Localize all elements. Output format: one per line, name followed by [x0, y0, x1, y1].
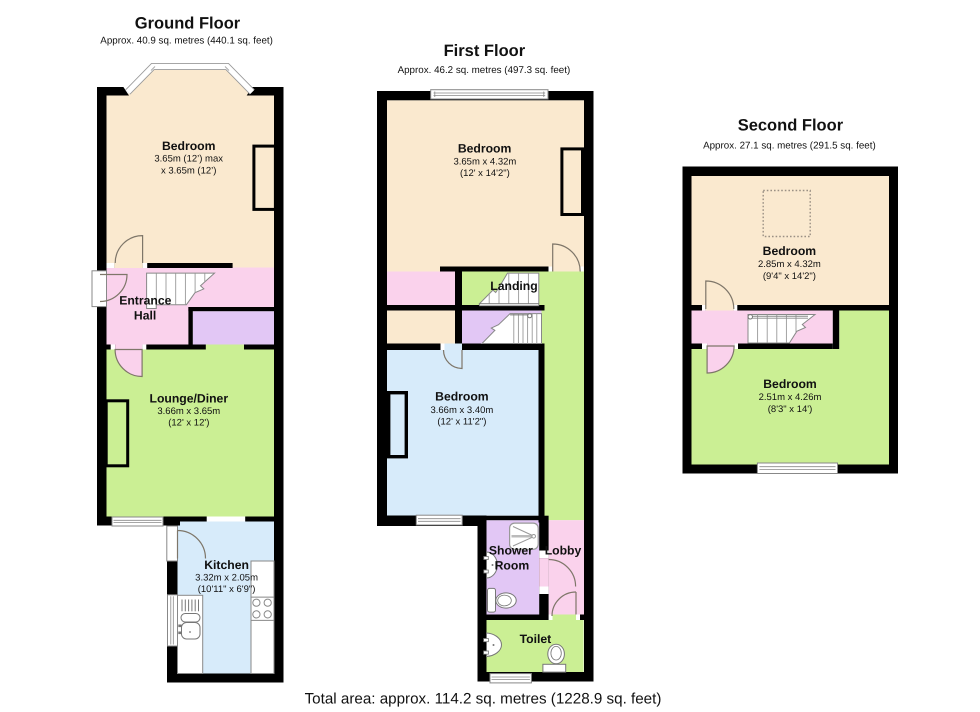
svg-text:3.66m x 3.40m: 3.66m x 3.40m — [430, 405, 493, 416]
svg-text:(9'4" x 14'2"): (9'4" x 14'2") — [763, 271, 816, 282]
svg-text:Ground Floor: Ground Floor — [135, 14, 241, 32]
svg-text:3.32m x 2.05m: 3.32m x 2.05m — [195, 573, 258, 584]
svg-text:Landing: Landing — [490, 279, 537, 293]
svg-text:2.85m x 4.32m: 2.85m x 4.32m — [758, 259, 821, 270]
svg-text:Approx. 40.9 sq. metres (440.1: Approx. 40.9 sq. metres (440.1 sq. feet) — [100, 36, 273, 47]
svg-text:Bedroom: Bedroom — [162, 139, 216, 153]
svg-text:Approx. 46.2 sq. metres (497.3: Approx. 46.2 sq. metres (497.3 sq. feet) — [398, 65, 571, 76]
svg-text:Shower: Shower — [489, 544, 533, 558]
svg-text:Lobby: Lobby — [545, 544, 582, 558]
svg-text:2.51m x 4.26m: 2.51m x 4.26m — [759, 392, 822, 403]
svg-text:Bedroom: Bedroom — [763, 244, 817, 258]
svg-text:3.65m (12’) max: 3.65m (12’) max — [154, 154, 223, 165]
svg-text:Second Floor: Second Floor — [738, 116, 844, 134]
svg-text:Bedroom: Bedroom — [458, 141, 512, 155]
svg-text:First Floor: First Floor — [444, 42, 526, 60]
svg-text:Bedroom: Bedroom — [763, 377, 817, 391]
svg-text:Kitchen: Kitchen — [204, 558, 249, 572]
svg-text:(12' x 11'2"): (12' x 11'2") — [437, 417, 486, 428]
svg-text:Total area: approx. 114.2 sq.: Total area: approx. 114.2 sq. metres (12… — [305, 691, 662, 708]
svg-text:(8'3" x 14'): (8'3" x 14') — [768, 404, 813, 415]
svg-text:(10'11" x 6'9"): (10'11" x 6'9") — [198, 584, 256, 595]
svg-text:3.65m x 4.32m: 3.65m x 4.32m — [453, 156, 516, 167]
svg-text:(12' x 12'): (12' x 12') — [168, 418, 209, 429]
svg-text:3.66m x 3.65m: 3.66m x 3.65m — [157, 406, 220, 417]
svg-text:Approx. 27.1 sq. metres (291.5: Approx. 27.1 sq. metres (291.5 sq. feet) — [703, 141, 876, 152]
svg-text:Hall: Hall — [134, 308, 156, 322]
svg-text:Entrance: Entrance — [119, 293, 171, 307]
svg-text:Room: Room — [495, 558, 530, 572]
svg-text:Toilet: Toilet — [520, 632, 552, 646]
svg-text:(12' x 14'2"): (12' x 14'2") — [460, 168, 510, 179]
svg-text:Bedroom: Bedroom — [435, 390, 489, 404]
svg-text:x 3.65m (12’): x 3.65m (12’) — [161, 165, 216, 176]
svg-text:Lounge/Diner: Lounge/Diner — [150, 391, 229, 405]
